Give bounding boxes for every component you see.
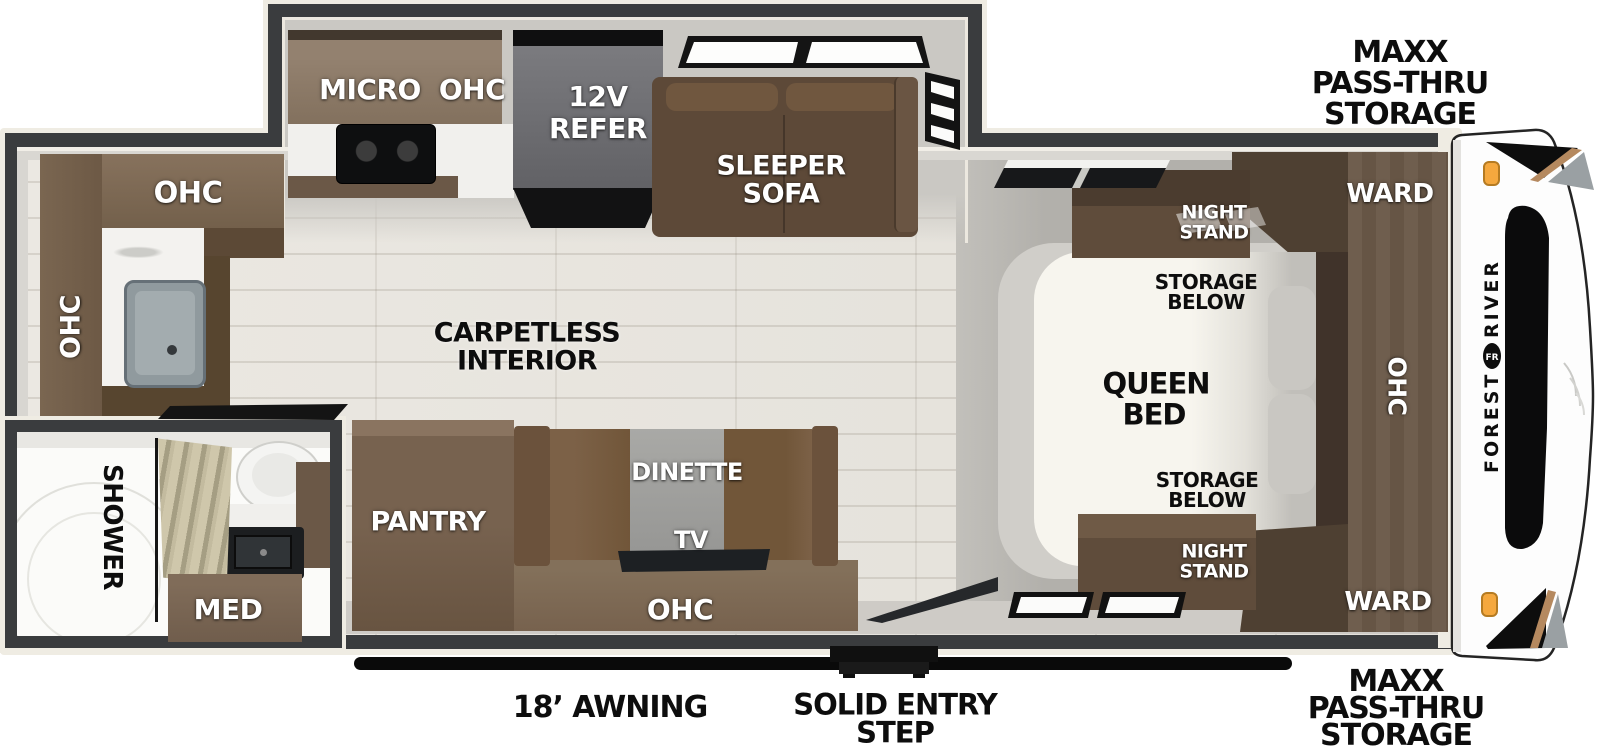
- bedroom-bottom-window-pane: [1105, 597, 1179, 613]
- label-carpetless-line1: CARPETLESS: [434, 320, 620, 347]
- label-dinette: DINETTE: [631, 460, 743, 484]
- label-refer-line2: REFER: [549, 115, 647, 143]
- label-shower: SHOWER: [99, 464, 125, 590]
- label-nightstand-top-line2: STAND: [1179, 224, 1248, 243]
- bedroom-top-window-sill: [1004, 160, 1170, 168]
- brand-text-river: RIVER: [1481, 259, 1503, 338]
- cap-windshield-graphic: [1505, 206, 1549, 549]
- front-cap: FOREST FR RIVER: [1448, 128, 1600, 664]
- marker-light-icon: [1482, 593, 1497, 616]
- label-storage-below-top-line2: BELOW: [1167, 292, 1245, 312]
- entry-step-foot: [843, 674, 855, 678]
- label-ward-top: WARD: [1346, 181, 1433, 207]
- label-nightstand-top-line1: NIGHT: [1182, 204, 1247, 223]
- label-refer-line1: 12V: [568, 83, 627, 111]
- bedroom-bottom-window-pane: [1016, 597, 1087, 613]
- label-ward-bottom: WARD: [1344, 589, 1431, 615]
- entry-step: [830, 646, 938, 662]
- label-lower-ohc: OHC: [647, 596, 713, 624]
- brand-text-forest: FOREST: [1481, 372, 1503, 473]
- label-kitchen-ohc-top: OHC: [154, 179, 223, 208]
- entry-step-body: [839, 662, 929, 674]
- label-storage-below-bottom-line1: STORAGE: [1156, 470, 1259, 490]
- label-storage-below-top-line1: STORAGE: [1155, 272, 1258, 292]
- label-sleeper-line2: SOFA: [743, 181, 820, 208]
- label-bedroom-ohc: OHC: [1385, 356, 1410, 415]
- marker-light-icon: [1484, 162, 1499, 185]
- label-pantry: PANTRY: [370, 509, 485, 536]
- bathroom-door-mat: [158, 404, 348, 420]
- entry-step-foot: [913, 674, 925, 678]
- label-maxx-top-line3: STORAGE: [1324, 100, 1476, 130]
- label-maxx-bottom-line3: STORAGE: [1320, 721, 1472, 751]
- label-maxx-top-line2: PASS-THRU: [1312, 69, 1488, 99]
- label-maxx-top-line1: MAXX: [1352, 38, 1447, 68]
- cap-edge-shadow: [1453, 140, 1461, 652]
- label-micro-ohc: OHC: [439, 76, 505, 104]
- label-queen-bed-line2: BED: [1123, 401, 1186, 430]
- label-nightstand-bottom-line2: STAND: [1179, 563, 1248, 582]
- brand-logo-text: FR: [1485, 353, 1498, 363]
- entry-door: [866, 577, 998, 623]
- floorplan-diagram: FOREST FR RIVER MICRO OHC 12V REFER SLEE…: [0, 0, 1600, 754]
- slide-window-pane: [806, 42, 923, 63]
- label-nightstand-bottom-line1: NIGHT: [1182, 543, 1247, 562]
- label-storage-below-bottom-line2: BELOW: [1168, 490, 1246, 510]
- label-entry-step-line2: STEP: [856, 719, 934, 748]
- label-tv: TV: [674, 528, 708, 552]
- label-micro: MICRO: [319, 76, 421, 104]
- label-queen-bed-line1: QUEEN: [1102, 370, 1209, 399]
- label-sleeper-line1: SLEEPER: [716, 153, 845, 180]
- label-carpetless-line2: INTERIOR: [457, 348, 597, 375]
- label-med: MED: [194, 596, 263, 624]
- slide-window-pane: [686, 42, 798, 63]
- awning-bar: [354, 657, 1292, 670]
- label-awning: 18’ AWNING: [513, 693, 708, 723]
- label-kitchen-ohc-left: OHC: [58, 295, 85, 359]
